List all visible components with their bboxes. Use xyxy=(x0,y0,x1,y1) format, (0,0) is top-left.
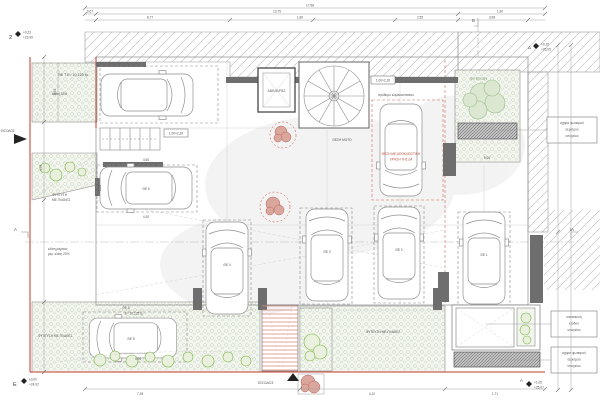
car-te1 xyxy=(460,212,509,304)
planting-tr-label: ΦΥΤΕΥΣΗ xyxy=(470,77,487,81)
dim-bottom-c: 1,71 xyxy=(492,392,498,396)
callout1-line3: υπογείου xyxy=(566,134,579,138)
car-te7 xyxy=(101,71,193,120)
dim-top2-b: 13,75 xyxy=(273,10,281,14)
dim-spot-top: 4,50 xyxy=(143,158,149,162)
dim-top3-d: 3,98 xyxy=(489,16,495,20)
ramp-slope-line2: μεγ. κλίση 20% xyxy=(48,252,70,256)
marker-bl-l2: +24,02 xyxy=(29,383,39,387)
dim-bl-bottom: 4,00 xyxy=(135,357,141,361)
callout2-line1: κατασκευή xyxy=(567,315,582,319)
marker-br-l2: +25,07 xyxy=(534,386,544,390)
marker-br-l1: +1,05 xyxy=(534,381,542,385)
spot-label-te6: ΘΕ 6 xyxy=(142,187,149,191)
moto-spot-label: ΘΕΣΗ ΜΟΤΟ xyxy=(332,138,352,142)
dim-bottom-a: 7,28 xyxy=(137,392,143,396)
dim-top2-c: 1,90 xyxy=(497,10,503,14)
elevator: ΑΝΕΛΚ/ΡΑΣ xyxy=(258,68,295,112)
exclusive-use-line1: ΘΕΣΗ ΜΕ ΑΠΟΚΛΕΙΣΤΙΚΗ xyxy=(382,152,421,156)
basement-exit-structure xyxy=(452,305,540,367)
entry-steps xyxy=(100,128,160,150)
marker-tr-l1: +0,15 xyxy=(541,43,549,47)
marker-tl-l2: +23,99 xyxy=(23,36,33,40)
planting-plates-tl-line2: ΜΕ ΠΛΑΚΕΣ xyxy=(52,198,70,202)
dim-top3-b: 1,80 xyxy=(297,16,303,20)
door-size-1: 1,00×2,20 xyxy=(169,132,183,136)
callout1-line1: σχάρα φωτισμού xyxy=(560,121,584,125)
marker-bl-l1: ±0,00 xyxy=(29,378,37,382)
callout2-line3: υπογείου xyxy=(568,328,581,332)
section-right-label: ΙΑ xyxy=(570,227,574,232)
marker-tl-l1: +0,23 xyxy=(23,31,31,35)
planting-plates-tl-line1: ΦΥΤΕΥΣΗ xyxy=(52,193,68,197)
dim-spot-bottom: 4,30 xyxy=(143,215,149,219)
stair-lobby-label: πρόθυρο κλιμακοστασίου xyxy=(378,93,414,97)
area-te5-area: Ε= 10,125 τμ xyxy=(125,312,144,316)
car-exclusive-d4 xyxy=(377,104,426,196)
door-size-2: 1,00×2,20 xyxy=(376,79,390,83)
callout2-line2: εξόδου xyxy=(569,322,579,326)
spot-label-te4: ΘΕ 4 xyxy=(223,263,230,267)
spot-label-te3: ΘΕ 3 xyxy=(323,250,330,254)
basement-grate-top-right xyxy=(458,123,517,139)
marker-tl-id: 2 xyxy=(9,35,12,41)
dim-left-054: 0,54 xyxy=(53,89,57,95)
dim-bottom-b: 4,10 xyxy=(369,392,375,396)
spot-label-te2: ΘΕ 2 xyxy=(395,248,402,252)
elevator-label: ΑΝΕΛΚ/ΡΑΣ xyxy=(268,89,286,93)
exclusive-use-line2: ΧΡΗΣΗ ΤΗΣ Δ4 xyxy=(390,158,413,162)
planting-top-right xyxy=(455,70,520,162)
marker-bl-id: Ε xyxy=(13,382,17,388)
dim-left-473: 4,73 xyxy=(39,165,43,171)
dim-top3-a: 8,77 xyxy=(147,16,153,20)
entrance-left-label: ΕΙΣΟΔΟΣ xyxy=(1,129,15,133)
dim-top2-a: 0,67 xyxy=(87,10,93,14)
car-te2 xyxy=(375,207,424,299)
spot-label-te1: ΘΕ 1 xyxy=(480,253,487,257)
floor-plan-canvas: ΑΝΕΛΚ/ΡΑΣ πρόθυρο κλιμακοστασίου ΘΕΣΗ ΜΟ… xyxy=(0,0,600,400)
ramp-slope-line1: κλίση ράμπας xyxy=(48,247,68,251)
callout3-line1: σχάρα φωτισμού xyxy=(562,351,586,355)
dim-spot-side: 2,25 xyxy=(98,185,102,191)
callout3-line2: αερισμού xyxy=(567,358,580,362)
dim-top3-c: 2,55 xyxy=(417,16,423,20)
section-left-label: Α xyxy=(14,227,17,232)
callout1-line2: αερισμού xyxy=(565,128,578,132)
planting-plates-right-label: ΦΥΤΕΥΣΗ ΜΕ ΠΛΑΚΕΣ xyxy=(366,330,400,334)
marker-br-id: Α xyxy=(520,378,523,383)
section-top-label: Β xyxy=(472,18,475,23)
area-te5-id: ΘΕ 5 xyxy=(122,306,129,310)
marker-tr-id: Δ xyxy=(528,45,531,50)
marker-tr-l2: +25,05 xyxy=(541,48,551,52)
dim-tr-width: 5,00 xyxy=(484,156,490,160)
car-te3 xyxy=(303,209,352,301)
spot-label-te5: ΘΕ 5 xyxy=(127,337,134,341)
floor-plan-drawing: ΑΝΕΛΚ/ΡΑΣ πρόθυρο κλιμακοστασίου ΘΕΣΗ ΜΟ… xyxy=(0,0,600,400)
entrance-bottom-label: ΕΙΣΟΔΟΣ xyxy=(258,381,274,385)
basement-grate-bottom-right xyxy=(454,352,540,367)
car-te4 xyxy=(203,222,252,314)
area-te7-label: ΘΕ 7 Ε= 10,125 τμ xyxy=(58,73,88,77)
callout3-line3: υπογείου xyxy=(568,364,581,368)
planting-plates-left-label: ΦΥΤΕΥΣΗ ΜΕ ΠΛΑΚΕΣ xyxy=(38,334,72,338)
dim-top-overall: 17,98 xyxy=(306,4,314,8)
